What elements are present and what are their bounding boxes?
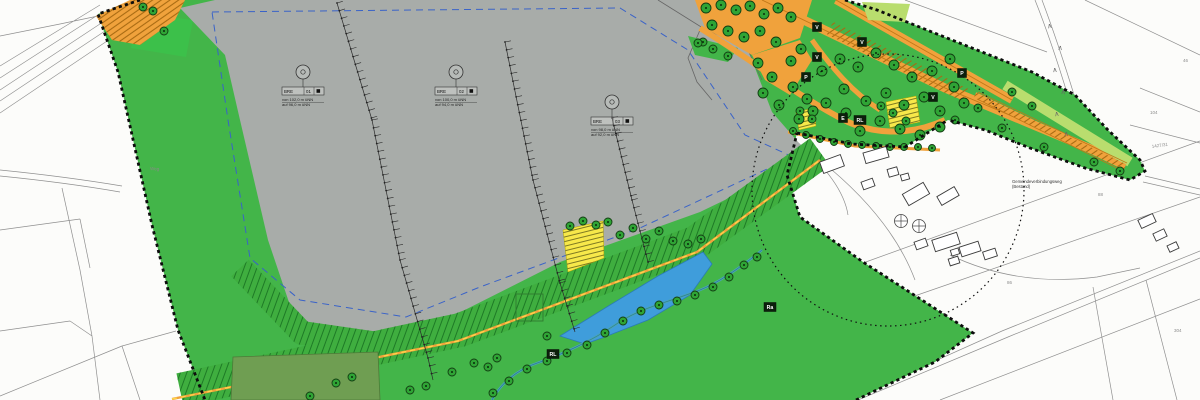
tree-symbol <box>759 9 769 19</box>
tree-symbol <box>707 20 717 30</box>
hedge-mark: ∧ <box>1060 89 1066 97</box>
tree-symbol <box>808 106 818 116</box>
tree-symbol <box>758 88 768 98</box>
tree-symbol <box>881 88 891 98</box>
tree-symbol <box>684 240 692 248</box>
tree-symbol <box>406 386 414 394</box>
tree-symbol <box>808 115 816 123</box>
tree-symbol <box>753 253 761 261</box>
tree-symbol <box>774 100 784 110</box>
tree-symbol <box>899 100 909 110</box>
area-code-marker: P <box>802 73 811 82</box>
tree-symbol <box>771 37 781 47</box>
tree-symbol <box>697 235 705 243</box>
tree-symbol <box>149 7 157 15</box>
tree-symbol <box>875 116 885 126</box>
tree-symbol <box>927 66 937 76</box>
tree-symbol <box>723 26 733 36</box>
parcel-number: 46 <box>1183 58 1189 63</box>
tree-symbol <box>1116 167 1124 175</box>
tree-symbol <box>755 26 765 36</box>
tree-symbol <box>740 261 748 269</box>
tree-symbol <box>773 3 783 13</box>
tree-symbol <box>655 301 663 309</box>
svg-text:E: E <box>841 116 845 122</box>
tree-symbol <box>767 72 777 82</box>
svg-text:V: V <box>931 95 935 101</box>
svg-text:RL: RL <box>550 352 558 358</box>
area-code-marker: V <box>929 93 938 102</box>
tree-symbol <box>566 222 574 230</box>
area-code-marker: RL <box>547 350 559 359</box>
svg-text:P: P <box>960 71 964 77</box>
tree-symbol <box>348 373 356 381</box>
area-code-marker: P <box>958 69 967 78</box>
forest-planting-area <box>231 352 380 400</box>
tree-symbol <box>579 217 587 225</box>
tree-symbol <box>790 128 797 135</box>
svg-text:Ra: Ra <box>767 305 774 311</box>
tree-symbol <box>895 124 905 134</box>
parcel-number: 304 <box>1174 328 1182 333</box>
circle-cross-symbol <box>913 220 926 233</box>
tree-symbol <box>889 109 897 117</box>
tree-symbol <box>788 82 798 92</box>
tree-symbol <box>839 84 849 94</box>
tree-symbol <box>448 368 456 376</box>
tree-symbol <box>821 98 831 108</box>
svg-text:BRE: BRE <box>284 89 293 94</box>
parcel-number: Weg <box>150 166 160 171</box>
tree-symbol <box>616 231 624 239</box>
tree-symbol <box>796 107 804 115</box>
tree-symbol <box>959 98 969 108</box>
tree-symbol <box>691 291 699 299</box>
parcel-number: 88 <box>1098 192 1104 197</box>
tree-symbol <box>974 104 982 112</box>
area-code-marker: E <box>839 114 848 123</box>
svg-text:V: V <box>815 25 819 31</box>
svg-text:BRE: BRE <box>593 119 602 124</box>
svg-text:01: 01 <box>306 89 311 94</box>
svg-text:02: 02 <box>459 89 464 94</box>
tree-symbol <box>505 377 513 385</box>
tree-symbol <box>724 52 732 60</box>
tree-symbol <box>796 44 806 54</box>
tree-symbol <box>1028 102 1036 110</box>
svg-text:P: P <box>804 75 808 81</box>
tree-symbol <box>642 235 650 243</box>
area-code-marker: V <box>858 38 867 47</box>
svg-text:V: V <box>860 40 864 46</box>
tree-symbol <box>484 363 492 371</box>
tree-symbol <box>786 12 796 22</box>
annotation-text: (Bestand) <box>1012 184 1031 189</box>
tree-symbol <box>160 27 168 35</box>
svg-text:auf 92,0 m üNN: auf 92,0 m üNN <box>591 132 619 137</box>
tree-symbol <box>543 332 551 340</box>
hedge-mark: ∧ <box>1063 131 1069 138</box>
tree-symbol <box>1040 143 1048 151</box>
tree-symbol <box>835 54 845 64</box>
hedge-mark: ∧ <box>1057 45 1063 52</box>
tree-symbol <box>629 224 637 232</box>
tree-symbol <box>915 144 922 151</box>
tree-symbol <box>1090 158 1098 166</box>
svg-text:RL: RL <box>857 118 865 124</box>
tree-symbol <box>725 273 733 281</box>
area-code-marker: V <box>813 53 822 62</box>
tree-symbol <box>655 227 663 235</box>
tree-symbol <box>745 1 755 11</box>
tree-symbol <box>739 32 749 42</box>
area-code-marker: RL <box>854 116 866 125</box>
plan-scan-canvas: VVVPERLVPRLRa BRE01von 102,0 m üNNauf 96… <box>0 0 1200 400</box>
circle-cross-symbol <box>895 215 908 228</box>
tree-symbol <box>935 106 945 116</box>
tree-symbol <box>592 221 600 229</box>
svg-text:V: V <box>815 55 819 61</box>
area-code-marker: V <box>813 23 822 32</box>
tree-symbol <box>855 126 865 136</box>
tree-symbol <box>583 341 591 349</box>
parcel-number: 86 <box>1007 280 1013 285</box>
tree-symbol <box>709 283 717 291</box>
tree-symbol <box>332 379 340 387</box>
tree-symbol <box>601 329 609 337</box>
tree-symbol <box>716 0 726 10</box>
tree-symbol <box>877 102 885 110</box>
tree-symbol <box>753 58 763 68</box>
tree-symbol <box>871 48 881 58</box>
tree-symbol <box>889 60 899 70</box>
tree-symbol <box>523 365 531 373</box>
tree-symbol <box>802 94 812 104</box>
tree-symbol <box>422 382 430 390</box>
hedge-mark: ∧ <box>1054 111 1060 119</box>
tree-symbol <box>701 3 711 13</box>
tree-symbol <box>306 392 314 400</box>
svg-text:auf 96,0 m üNN: auf 96,0 m üNN <box>282 102 310 107</box>
tree-symbol <box>493 354 501 362</box>
hedge-mark: ∧ <box>1052 67 1058 74</box>
tree-symbol <box>861 96 871 106</box>
meadow-patch <box>862 2 910 22</box>
tree-symbol <box>731 5 741 15</box>
tree-symbol <box>637 307 645 315</box>
tree-symbol <box>489 389 497 397</box>
tree-symbol <box>694 39 702 47</box>
tree-symbol <box>945 54 955 64</box>
tree-symbol <box>919 92 929 102</box>
tree-symbol <box>470 359 478 367</box>
tree-symbol <box>709 45 717 53</box>
tree-symbol <box>669 237 677 245</box>
tree-symbol <box>998 124 1006 132</box>
landscape-plan-map: VVVPERLVPRLRa BRE01von 102,0 m üNNauf 96… <box>0 0 1200 400</box>
tree-symbol <box>929 145 936 152</box>
tree-symbol <box>853 62 863 72</box>
tree-symbol <box>673 297 681 305</box>
tree-symbol <box>786 56 796 66</box>
tree-symbol <box>139 3 147 11</box>
tree-symbol <box>907 72 917 82</box>
tree-symbol <box>902 117 910 125</box>
tree-symbol <box>817 66 827 76</box>
parcel-number: 104 <box>1150 110 1158 115</box>
svg-text:03: 03 <box>615 119 620 124</box>
tree-symbol <box>619 317 627 325</box>
tree-symbol <box>794 114 804 124</box>
svg-text:auf 94,0 m üNN: auf 94,0 m üNN <box>435 102 463 107</box>
svg-text:BRE: BRE <box>437 89 446 94</box>
area-code-marker: Ra <box>764 303 776 312</box>
tree-symbol <box>563 349 571 357</box>
tree-symbol <box>949 82 959 92</box>
tree-symbol <box>1008 88 1016 96</box>
tree-symbol <box>604 218 612 226</box>
